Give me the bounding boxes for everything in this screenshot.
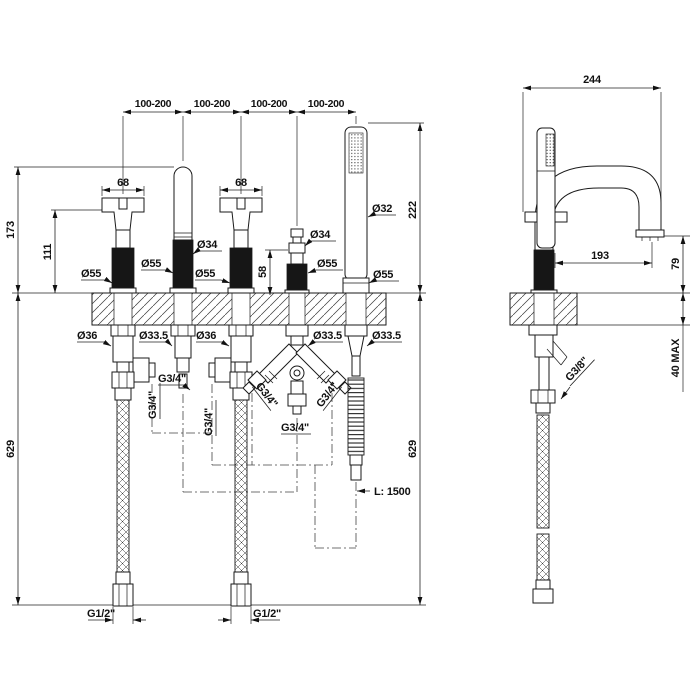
label-supply-thread-side: G3/8" [563, 355, 591, 384]
dim-depth-total: 244 [583, 74, 602, 86]
label-thread-valve-right: G3/4" [203, 408, 215, 436]
dim-spacing-3: 100-200 [251, 98, 288, 110]
label-hole-handle-right: Ø36 [196, 330, 216, 342]
dim-shower-height: 222 [407, 201, 419, 219]
connection-routing [152, 384, 356, 548]
shower-spray-face [349, 133, 363, 173]
label-dia-shower: Ø32 [372, 203, 392, 215]
aerator [636, 230, 664, 237]
technical-drawing: 100-200 100-200 100-200 100-200 68 68 17… [0, 0, 700, 700]
label-dia-spout: Ø34 [197, 239, 218, 251]
label-hole-spout: Ø33.5 [139, 330, 168, 342]
label-hole-diverter: Ø33.5 [313, 330, 342, 342]
valve-right-outlet-elbow [215, 358, 231, 382]
label-thread-valve-left: G3/4" [147, 391, 159, 419]
dim-drop-right: 629 [407, 440, 419, 458]
label-dia-handle-right: Ø55 [195, 268, 215, 280]
label-hole-handle-left: Ø36 [77, 330, 97, 342]
dim-diverter-height: 58 [257, 266, 269, 278]
label-hole-shower: Ø33.5 [372, 330, 401, 342]
label-hose-length: L: 1500 [357, 486, 411, 498]
label-dia-diverter: Ø34 [310, 229, 331, 241]
faucet-installation-drawing: 100-200 100-200 100-200 100-200 68 68 17… [0, 0, 700, 700]
labels-supply: G1/2" G1/2" [87, 607, 281, 624]
supply-hose-side [537, 415, 549, 528]
valve-right [209, 198, 262, 606]
label-thread-spout: G3/4" [158, 373, 186, 385]
valve-left-outlet-elbow [133, 358, 149, 382]
dim-spout-reach: 193 [591, 250, 609, 262]
dim-drop-left: 629 [5, 440, 17, 458]
dim-deck-thickness: 40 MAX [670, 338, 682, 377]
dim-handle-width-right: 68 [235, 177, 247, 189]
dim-handle-height: 111 [42, 244, 54, 261]
dim-spacing-4: 100-200 [308, 98, 345, 110]
dim-handle-width-left: 68 [117, 177, 129, 189]
dim-spacing-2: 100-200 [194, 98, 231, 110]
label-dia-diverter-base: Ø55 [317, 258, 337, 270]
label-hose-length-text: L: 1500 [374, 486, 411, 498]
supply-hose-left [117, 400, 129, 572]
hand-shower-front [343, 127, 369, 480]
label-thread-diverter-outlet: G3/4" [281, 422, 309, 434]
label-dia-shower-base: Ø55 [373, 269, 393, 281]
dim-spacing-1: 100-200 [135, 98, 172, 110]
label-dia-spout-base: Ø55 [141, 258, 161, 270]
dim-spout-height: 79 [670, 258, 682, 270]
supply-hose-right [235, 400, 247, 572]
label-supply-right: G1/2" [253, 608, 281, 620]
dim-heights-left: 173 111 629 [5, 167, 55, 605]
shower-hose-spring [348, 378, 364, 455]
label-dia-handle-left: Ø55 [81, 268, 101, 280]
spout-front [170, 167, 196, 388]
dim-total-height: 173 [5, 221, 17, 239]
label-supply-left: G1/2" [87, 608, 115, 620]
shower-holder [343, 278, 369, 293]
